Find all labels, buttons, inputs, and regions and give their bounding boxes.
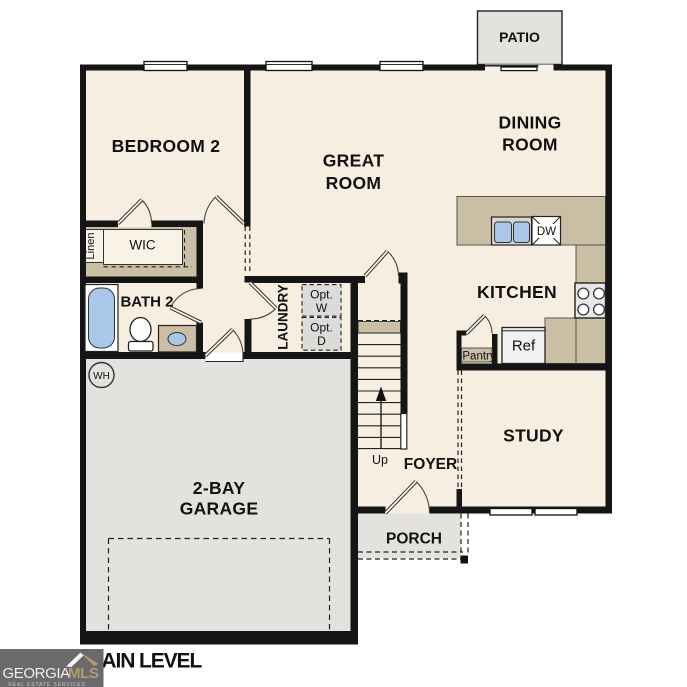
svg-text:ROOM: ROOM bbox=[326, 173, 382, 193]
svg-text:WIC: WIC bbox=[129, 238, 155, 253]
svg-text:FOYER: FOYER bbox=[404, 456, 457, 473]
svg-text:REAL ESTATE SERVICES: REAL ESTATE SERVICES bbox=[8, 682, 86, 687]
svg-text:DW: DW bbox=[537, 226, 556, 238]
svg-text:BEDROOM 2: BEDROOM 2 bbox=[112, 136, 221, 156]
svg-text:GREAT: GREAT bbox=[323, 151, 384, 171]
svg-text:PORCH: PORCH bbox=[386, 531, 442, 548]
svg-text:GEORGIA: GEORGIA bbox=[3, 665, 71, 682]
svg-text:D: D bbox=[317, 334, 326, 348]
svg-text:PATIO: PATIO bbox=[499, 29, 540, 45]
svg-text:MLS: MLS bbox=[68, 665, 99, 682]
svg-text:KITCHEN: KITCHEN bbox=[477, 282, 557, 302]
svg-text:BATH 2: BATH 2 bbox=[120, 294, 173, 311]
svg-text:Ref: Ref bbox=[512, 338, 536, 355]
svg-text:STUDY: STUDY bbox=[503, 426, 564, 446]
svg-text:GARAGE: GARAGE bbox=[180, 499, 259, 519]
svg-text:WH: WH bbox=[93, 371, 110, 382]
svg-text:DINING: DINING bbox=[498, 113, 561, 133]
svg-text:ROOM: ROOM bbox=[502, 135, 558, 155]
svg-text:2-BAY: 2-BAY bbox=[193, 478, 245, 498]
svg-text:W: W bbox=[316, 301, 328, 315]
svg-text:Opt.: Opt. bbox=[310, 288, 333, 302]
svg-text:Pantry: Pantry bbox=[462, 350, 495, 362]
svg-text:Opt.: Opt. bbox=[310, 321, 333, 335]
svg-text:Linen: Linen bbox=[85, 233, 97, 260]
svg-text:LAUNDRY: LAUNDRY bbox=[276, 284, 291, 350]
svg-text:Up: Up bbox=[372, 453, 388, 467]
